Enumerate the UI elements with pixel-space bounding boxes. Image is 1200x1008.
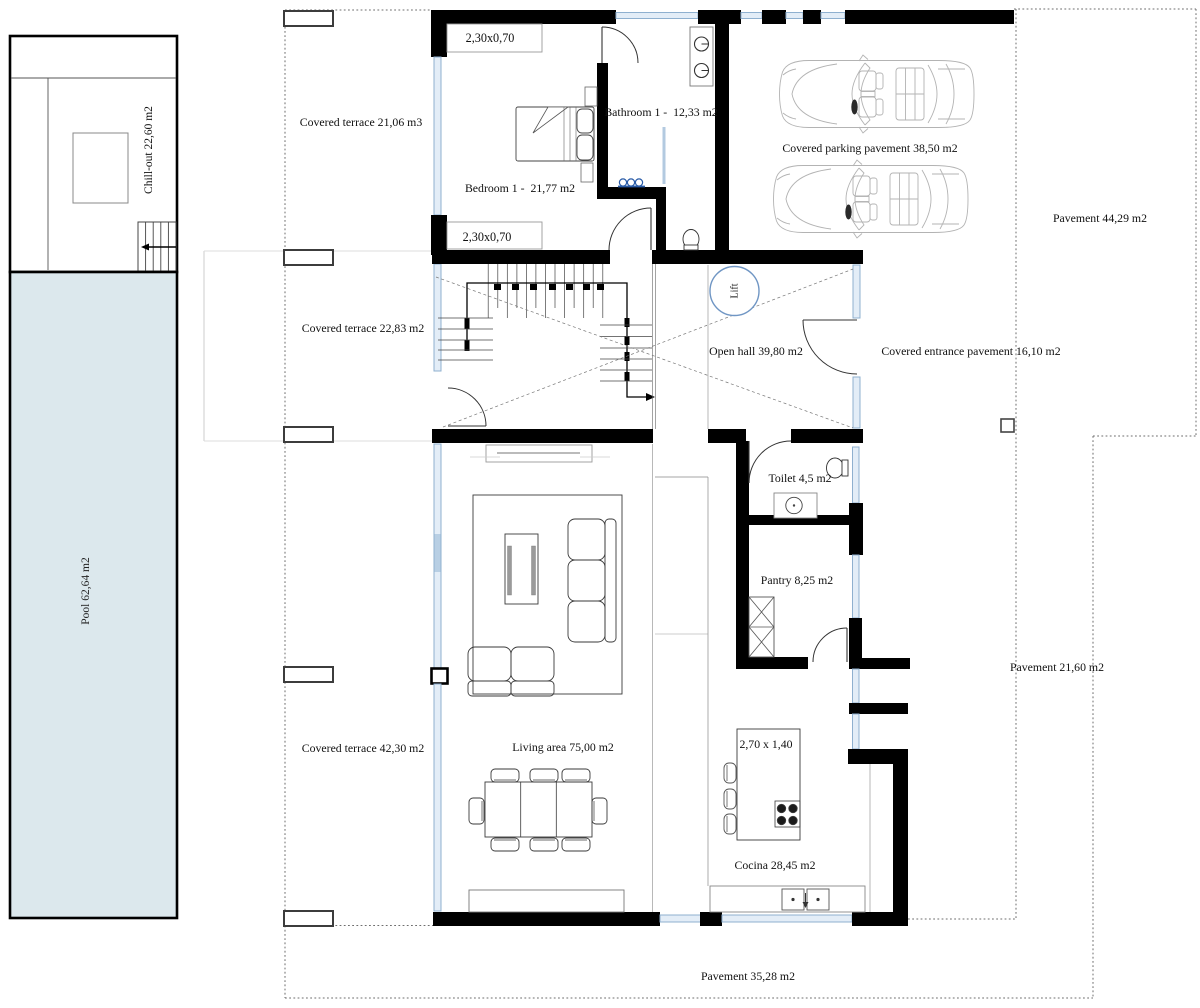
svg-text:2,70 x 1,40: 2,70 x 1,40 — [739, 737, 792, 751]
svg-text:Bedroom 1 - 21,77 m2: Bedroom 1 - 21,77 m2 — [465, 181, 575, 195]
svg-text:2,30x0,70: 2,30x0,70 — [463, 230, 512, 244]
svg-text:Pool 62,64 m2: Pool 62,64 m2 — [80, 557, 92, 625]
svg-text:Covered terrace 42,30 m2: Covered terrace 42,30 m2 — [302, 741, 425, 755]
svg-text:Pavement 21,60 m2: Pavement 21,60 m2 — [1010, 660, 1104, 674]
svg-text:Covered parking pavement 38,50: Covered parking pavement 38,50 m2 — [782, 141, 957, 155]
svg-text:Open hall 39,80 m2: Open hall 39,80 m2 — [709, 344, 803, 358]
svg-text:Bathroom 1 - 12,33 m2: Bathroom 1 - 12,33 m2 — [604, 105, 717, 119]
svg-text:Toilet 4,5 m2: Toilet 4,5 m2 — [768, 471, 831, 485]
svg-text:2,30x0,70: 2,30x0,70 — [466, 31, 515, 45]
svg-text:Covered terrace 21,06 m3: Covered terrace 21,06 m3 — [300, 115, 423, 129]
svg-text:Chill-out 22,60 m2: Chill-out 22,60 m2 — [143, 106, 155, 194]
svg-text:Covered entrance pavement 16,1: Covered entrance pavement 16,10 m2 — [881, 344, 1060, 358]
svg-text:Lift: Lift — [730, 283, 741, 298]
svg-text:Pavement 44,29 m2: Pavement 44,29 m2 — [1053, 211, 1147, 225]
svg-text:Pantry 8,25 m2: Pantry 8,25 m2 — [761, 573, 834, 587]
svg-text:Pavement 35,28 m2: Pavement 35,28 m2 — [701, 969, 795, 983]
svg-text:Covered terrace 22,83 m2: Covered terrace 22,83 m2 — [302, 321, 425, 335]
svg-text:Cocina 28,45 m2: Cocina 28,45 m2 — [735, 858, 816, 872]
svg-text:Living area 75,00 m2: Living area 75,00 m2 — [512, 740, 614, 754]
